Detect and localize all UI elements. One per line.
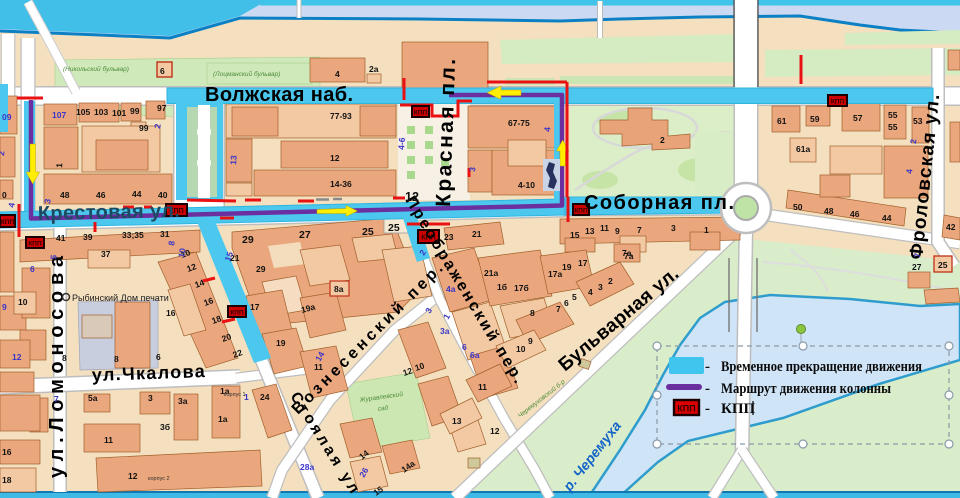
svg-text:8: 8 bbox=[114, 354, 119, 364]
svg-text:9: 9 bbox=[528, 336, 533, 346]
svg-text:19: 19 bbox=[276, 338, 286, 348]
svg-text:8: 8 bbox=[530, 308, 535, 318]
svg-text:21a: 21a bbox=[484, 268, 498, 278]
svg-text:8: 8 bbox=[62, 353, 67, 363]
svg-text:3: 3 bbox=[148, 393, 153, 403]
svg-text:КПП: КПП bbox=[230, 310, 244, 317]
svg-text:(Никольский бульвар): (Никольский бульвар) bbox=[63, 65, 129, 73]
svg-text:44: 44 bbox=[132, 189, 142, 199]
svg-text:97: 97 bbox=[157, 103, 167, 113]
svg-text:12: 12 bbox=[330, 153, 340, 163]
svg-text:55: 55 bbox=[888, 110, 898, 120]
svg-text:Временное прекращение движения: Временное прекращение движения bbox=[721, 359, 922, 375]
svg-text:КПП: КПП bbox=[1, 219, 15, 226]
svg-text:17: 17 bbox=[578, 258, 588, 268]
svg-text:59: 59 bbox=[810, 114, 820, 124]
svg-text:3a: 3a bbox=[440, 326, 450, 336]
svg-text:40: 40 bbox=[158, 190, 168, 200]
svg-text:25: 25 bbox=[362, 226, 374, 238]
svg-text:13: 13 bbox=[585, 226, 595, 236]
svg-text:7a: 7a bbox=[622, 248, 632, 258]
svg-text:29: 29 bbox=[242, 234, 254, 246]
svg-text:57: 57 bbox=[853, 113, 863, 123]
svg-text:10: 10 bbox=[18, 297, 28, 307]
svg-text:ул.Чкалова: ул.Чкалова bbox=[91, 361, 206, 385]
svg-text:09: 09 bbox=[2, 112, 12, 122]
svg-text:12: 12 bbox=[405, 190, 419, 204]
svg-text:101: 101 bbox=[112, 108, 126, 118]
svg-text:КПП: КПП bbox=[831, 99, 845, 106]
svg-text:1a: 1a bbox=[218, 414, 228, 424]
svg-text:12: 12 bbox=[128, 471, 138, 481]
svg-text:46: 46 bbox=[96, 190, 106, 200]
svg-text:2a: 2a bbox=[369, 64, 379, 74]
svg-text:11: 11 bbox=[314, 362, 323, 372]
svg-text:13: 13 bbox=[228, 155, 239, 166]
svg-text:33;35: 33;35 bbox=[122, 230, 144, 240]
svg-text:25: 25 bbox=[388, 222, 400, 234]
svg-text:99: 99 bbox=[139, 123, 149, 133]
svg-text:107: 107 bbox=[52, 110, 66, 120]
svg-text:23: 23 bbox=[444, 232, 454, 242]
svg-text:48: 48 bbox=[60, 190, 70, 200]
svg-text:44: 44 bbox=[882, 213, 892, 223]
svg-text:4: 4 bbox=[335, 69, 340, 79]
svg-text:67-75: 67-75 bbox=[508, 118, 530, 128]
svg-text:25: 25 bbox=[938, 260, 948, 270]
svg-text:4-6: 4-6 bbox=[396, 137, 407, 150]
svg-text:5: 5 bbox=[572, 292, 577, 302]
svg-text:41: 41 bbox=[56, 233, 66, 243]
svg-text:11: 11 bbox=[104, 435, 113, 445]
svg-text:-: - bbox=[705, 401, 710, 417]
svg-text:11: 11 bbox=[478, 382, 487, 392]
svg-text:6: 6 bbox=[30, 264, 35, 274]
svg-text:28a: 28a bbox=[300, 462, 314, 472]
svg-text:7: 7 bbox=[556, 304, 561, 314]
svg-text:6: 6 bbox=[462, 342, 467, 352]
svg-text:48: 48 bbox=[824, 206, 834, 216]
svg-text:31: 31 bbox=[160, 229, 170, 239]
svg-text:4: 4 bbox=[588, 287, 593, 297]
svg-text:46: 46 bbox=[850, 209, 860, 219]
svg-text:корпус 1: корпус 1 bbox=[224, 392, 246, 398]
svg-text:10: 10 bbox=[176, 247, 188, 258]
svg-text:4a: 4a bbox=[446, 284, 456, 294]
svg-text:-: - bbox=[705, 359, 710, 375]
svg-text:1: 1 bbox=[704, 225, 709, 235]
svg-text:КПП: КПП bbox=[28, 241, 42, 248]
svg-text:99: 99 bbox=[130, 106, 140, 116]
svg-text:7: 7 bbox=[54, 394, 59, 404]
svg-text:16: 16 bbox=[2, 447, 12, 457]
svg-text:1б: 1б bbox=[497, 282, 507, 292]
svg-text:-: - bbox=[705, 381, 710, 397]
svg-text:19: 19 bbox=[562, 262, 572, 272]
svg-text:55: 55 bbox=[888, 122, 898, 132]
svg-text:13: 13 bbox=[452, 416, 462, 426]
svg-text:10: 10 bbox=[516, 344, 526, 354]
svg-text:6: 6 bbox=[564, 298, 569, 308]
svg-text:3: 3 bbox=[598, 282, 603, 292]
svg-text:Соборная пл.: Соборная пл. bbox=[584, 192, 734, 214]
svg-text:27: 27 bbox=[912, 262, 922, 272]
svg-text:18: 18 bbox=[2, 475, 12, 485]
svg-text:сад: сад bbox=[377, 404, 389, 413]
svg-text:5a: 5a bbox=[88, 393, 98, 403]
svg-text:77-93: 77-93 bbox=[330, 111, 352, 121]
svg-text:Рыбинский Дом печати: Рыбинский Дом печати bbox=[72, 293, 169, 303]
svg-text:9: 9 bbox=[615, 226, 620, 236]
svg-text:24: 24 bbox=[260, 392, 270, 402]
svg-text:7: 7 bbox=[637, 225, 642, 235]
svg-text:12: 12 bbox=[490, 426, 500, 436]
svg-text:11: 11 bbox=[600, 223, 609, 233]
svg-text:27: 27 bbox=[299, 229, 311, 241]
svg-text:61a: 61a bbox=[796, 144, 810, 154]
svg-text:29: 29 bbox=[256, 264, 266, 274]
svg-text:2: 2 bbox=[608, 276, 613, 286]
svg-text:3: 3 bbox=[671, 223, 676, 233]
svg-text:17б: 17б bbox=[514, 283, 529, 293]
svg-text:2: 2 bbox=[660, 135, 665, 145]
svg-text:6: 6 bbox=[160, 66, 165, 76]
svg-text:КПП: КПП bbox=[677, 404, 695, 414]
svg-text:14-36: 14-36 bbox=[330, 179, 352, 189]
svg-text:Крестовая ул.: Крестовая ул. bbox=[38, 200, 180, 225]
svg-text:Волжская наб.: Волжская наб. bbox=[205, 84, 353, 106]
svg-text:42: 42 bbox=[946, 222, 956, 232]
svg-text:Маршрут движения колонны: Маршрут движения колонны bbox=[721, 381, 891, 397]
svg-text:16: 16 bbox=[166, 308, 176, 318]
svg-text:103: 103 bbox=[94, 107, 108, 117]
svg-text:8a: 8a bbox=[334, 284, 344, 294]
svg-text:15: 15 bbox=[570, 230, 580, 240]
svg-text:12: 12 bbox=[12, 352, 22, 362]
svg-text:(Лоцманский бульвар): (Лоцманский бульвар) bbox=[213, 70, 280, 78]
svg-text:39: 39 bbox=[83, 232, 93, 242]
svg-text:61: 61 bbox=[777, 116, 787, 126]
svg-text:37: 37 bbox=[101, 249, 111, 259]
svg-text:21: 21 bbox=[472, 229, 482, 239]
svg-text:4-10: 4-10 bbox=[518, 180, 535, 190]
svg-text:КПП: КПП bbox=[414, 110, 428, 117]
svg-text:105: 105 bbox=[76, 107, 90, 117]
svg-text:КПП: КПП bbox=[721, 401, 756, 417]
svg-text:6a: 6a bbox=[470, 350, 480, 360]
svg-text:50: 50 bbox=[793, 202, 803, 212]
svg-text:6: 6 bbox=[156, 352, 161, 362]
svg-text:3a: 3a bbox=[178, 396, 188, 406]
svg-text:3б: 3б bbox=[160, 422, 170, 432]
svg-text:корпус 2: корпус 2 bbox=[148, 476, 170, 482]
svg-text:17a: 17a bbox=[548, 269, 562, 279]
svg-text:9: 9 bbox=[2, 302, 7, 312]
svg-text:17: 17 bbox=[250, 302, 260, 312]
svg-text:53: 53 bbox=[913, 116, 923, 126]
svg-text:0: 0 bbox=[2, 190, 7, 200]
